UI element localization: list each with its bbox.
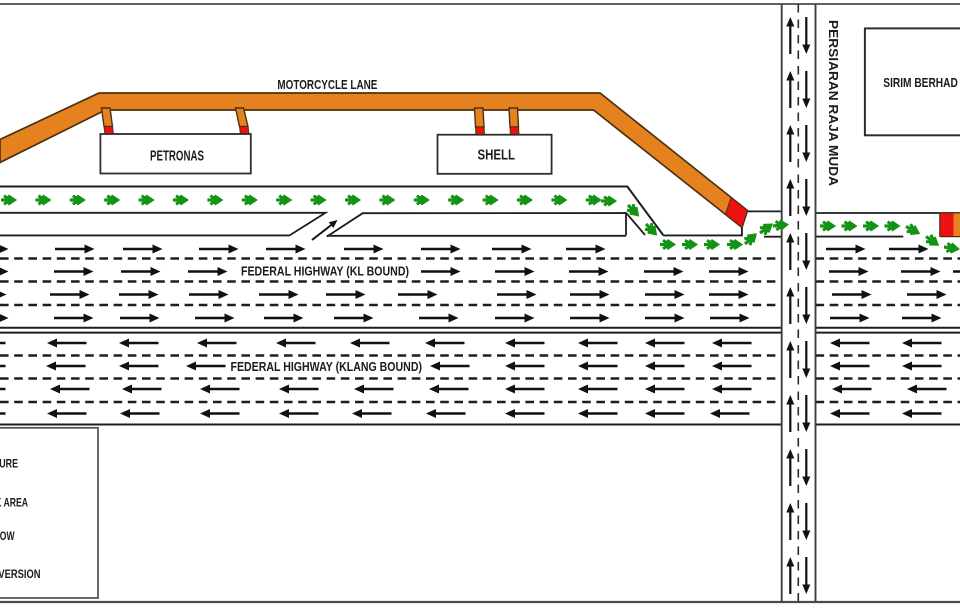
svg-text:PERSIARAN RAJA MUDA: PERSIARAN RAJA MUDA [826,20,840,186]
svg-text:PETRONAS: PETRONAS [150,149,204,165]
svg-text:TRAFFIC FLOW: TRAFFIC FLOW [0,531,15,543]
svg-text:SHELL: SHELL [478,148,516,164]
svg-text:FEDERAL HIGHWAY (KLANG BOUND): FEDERAL HIGHWAY (KLANG BOUND) [231,359,423,374]
svg-text:MOTORCYCLE LANE: MOTORCYCLE LANE [277,77,377,92]
svg-text:WORK AREA: WORK AREA [0,498,28,510]
svg-text:LANE CLOSURE: LANE CLOSURE [0,459,18,471]
svg-text:SIRIM BERHAD: SIRIM BERHAD [883,75,958,90]
svg-text:FEDERAL HIGHWAY (KL BOUND): FEDERAL HIGHWAY (KL BOUND) [241,264,409,279]
svg-text:TRAFFIC DIVERSION: TRAFFIC DIVERSION [0,569,41,581]
